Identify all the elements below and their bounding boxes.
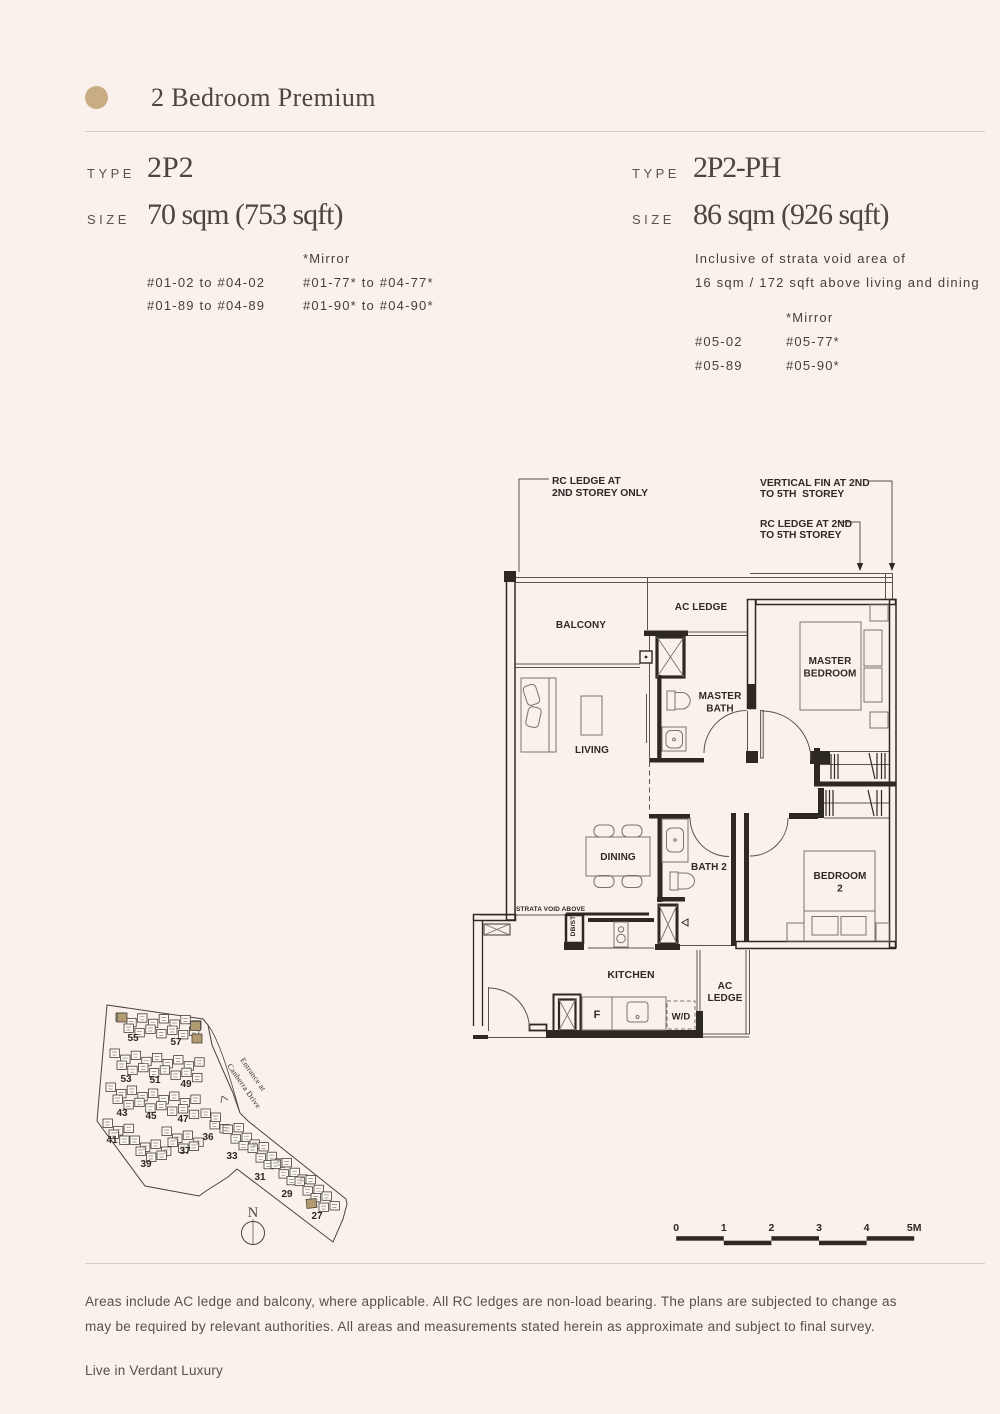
svg-text:TO 5TH STOREY: TO 5TH STOREY	[760, 489, 844, 500]
svg-text:47: 47	[177, 1114, 189, 1125]
svg-text:BATH: BATH	[706, 704, 733, 715]
svg-text:45: 45	[145, 1111, 157, 1122]
svg-text:0: 0	[673, 1222, 679, 1234]
svg-text:LIVING: LIVING	[575, 745, 609, 756]
svg-text:N: N	[248, 1205, 259, 1221]
svg-text:27: 27	[311, 1211, 323, 1222]
svg-text:DINING: DINING	[600, 852, 636, 863]
svg-text:MASTER: MASTER	[699, 691, 742, 702]
svg-text:LEDGE: LEDGE	[708, 993, 743, 1004]
svg-text:39: 39	[140, 1159, 152, 1170]
svg-text:29: 29	[281, 1189, 293, 1200]
svg-text:DB/ST: DB/ST	[570, 915, 577, 937]
svg-text:BEDROOM: BEDROOM	[814, 871, 867, 882]
svg-text:5M: 5M	[907, 1222, 922, 1234]
svg-text:2: 2	[768, 1222, 774, 1234]
svg-text:KITCHEN: KITCHEN	[607, 969, 654, 981]
svg-text:BALCONY: BALCONY	[556, 620, 606, 631]
svg-text:VERTICAL FIN AT 2ND: VERTICAL FIN AT 2ND	[760, 478, 870, 489]
svg-text:4: 4	[864, 1222, 870, 1234]
svg-text:41: 41	[106, 1135, 118, 1146]
svg-text:37: 37	[179, 1146, 191, 1157]
svg-text:3: 3	[816, 1222, 822, 1234]
svg-text:53: 53	[120, 1074, 132, 1085]
svg-text:33: 33	[226, 1151, 238, 1162]
svg-text:RC LEDGE AT 2ND: RC LEDGE AT 2ND	[760, 519, 852, 530]
svg-text:AC LEDGE: AC LEDGE	[675, 602, 728, 613]
svg-text:51: 51	[149, 1075, 161, 1086]
svg-text:TO 5TH STOREY: TO 5TH STOREY	[760, 530, 842, 541]
svg-text:2ND STOREY ONLY: 2ND STOREY ONLY	[552, 488, 648, 499]
svg-text:36: 36	[202, 1132, 214, 1143]
svg-text:31: 31	[254, 1172, 266, 1183]
svg-text:AC: AC	[718, 981, 733, 992]
svg-text:RC LEDGE AT: RC LEDGE AT	[552, 476, 621, 487]
svg-text:55: 55	[127, 1033, 139, 1044]
svg-text:1: 1	[721, 1222, 727, 1234]
svg-text:BEDROOM: BEDROOM	[804, 669, 857, 680]
svg-text:W/D: W/D	[672, 1012, 691, 1023]
svg-text:57: 57	[170, 1037, 182, 1048]
svg-text:STRATA VOID ABOVE: STRATA VOID ABOVE	[516, 906, 586, 913]
svg-text:MASTER: MASTER	[809, 656, 852, 667]
svg-text:43: 43	[116, 1108, 128, 1119]
svg-text:2: 2	[837, 884, 843, 895]
svg-text:F: F	[594, 1009, 601, 1021]
svg-text:BATH 2: BATH 2	[691, 862, 727, 873]
svg-text:49: 49	[180, 1079, 192, 1090]
